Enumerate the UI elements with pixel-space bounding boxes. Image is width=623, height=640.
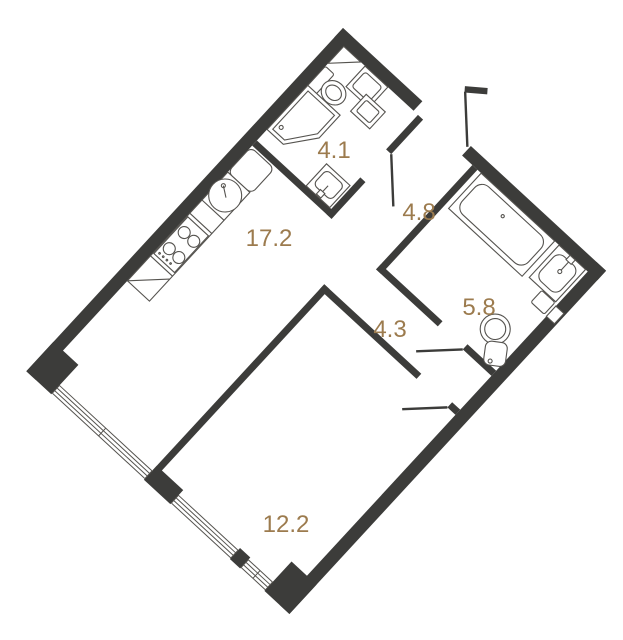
wc-right-wall-upper: [386, 115, 423, 154]
window-2: [171, 495, 238, 558]
room-area-label-kitchen-living: 17.2: [246, 225, 293, 252]
room-area-label-wc-combined: 4.1: [317, 137, 350, 164]
living-room-door-leaf: [402, 386, 447, 431]
bathroom-door-leaf: [416, 327, 463, 374]
room-area-label-bathroom: 5.8: [462, 294, 495, 321]
room-area-label-living-room: 12.2: [263, 511, 310, 538]
room-area-label-hallway: 4.3: [373, 316, 406, 343]
entrance-door-leaf: [439, 92, 494, 147]
window-3: [241, 560, 272, 590]
floor-plan-canvas: 4.117.24.85.84.312.2: [0, 0, 623, 640]
floor-plan-svg: 4.117.24.85.84.312.2: [0, 0, 623, 640]
wall-left: [26, 28, 352, 380]
window-wall-corner-left: [26, 342, 78, 394]
window-1: [52, 385, 152, 478]
window-mullion-2: [230, 548, 250, 569]
kitchen-living-divider: [153, 284, 330, 475]
window-wall-corner-right: [264, 562, 316, 614]
room-area-label-corridor: 4.8: [402, 199, 435, 226]
wall-top-left: [334, 28, 422, 111]
plan-rotated-group: [26, 0, 623, 614]
kitchen-fixtures: [126, 145, 275, 302]
